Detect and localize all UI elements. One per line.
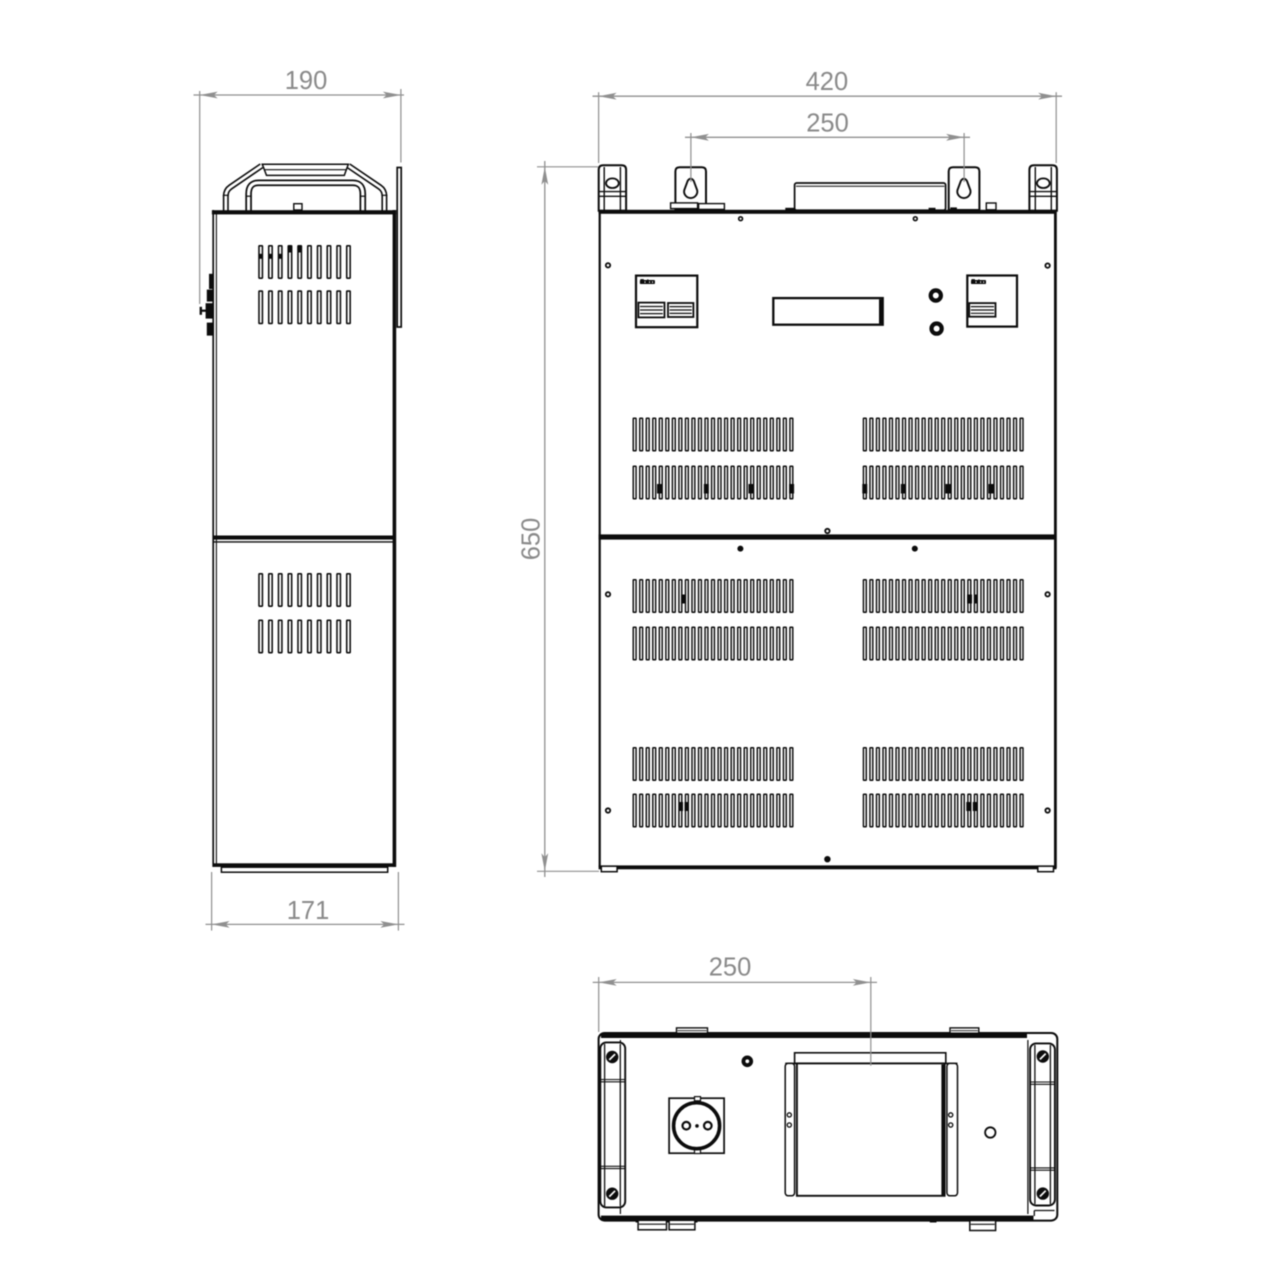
svg-text:650: 650: [518, 518, 546, 561]
svg-text:190: 190: [285, 67, 328, 95]
svg-text:250: 250: [806, 110, 849, 138]
svg-text:250: 250: [709, 953, 752, 981]
svg-text:171: 171: [287, 897, 330, 925]
svg-text:420: 420: [806, 68, 849, 96]
